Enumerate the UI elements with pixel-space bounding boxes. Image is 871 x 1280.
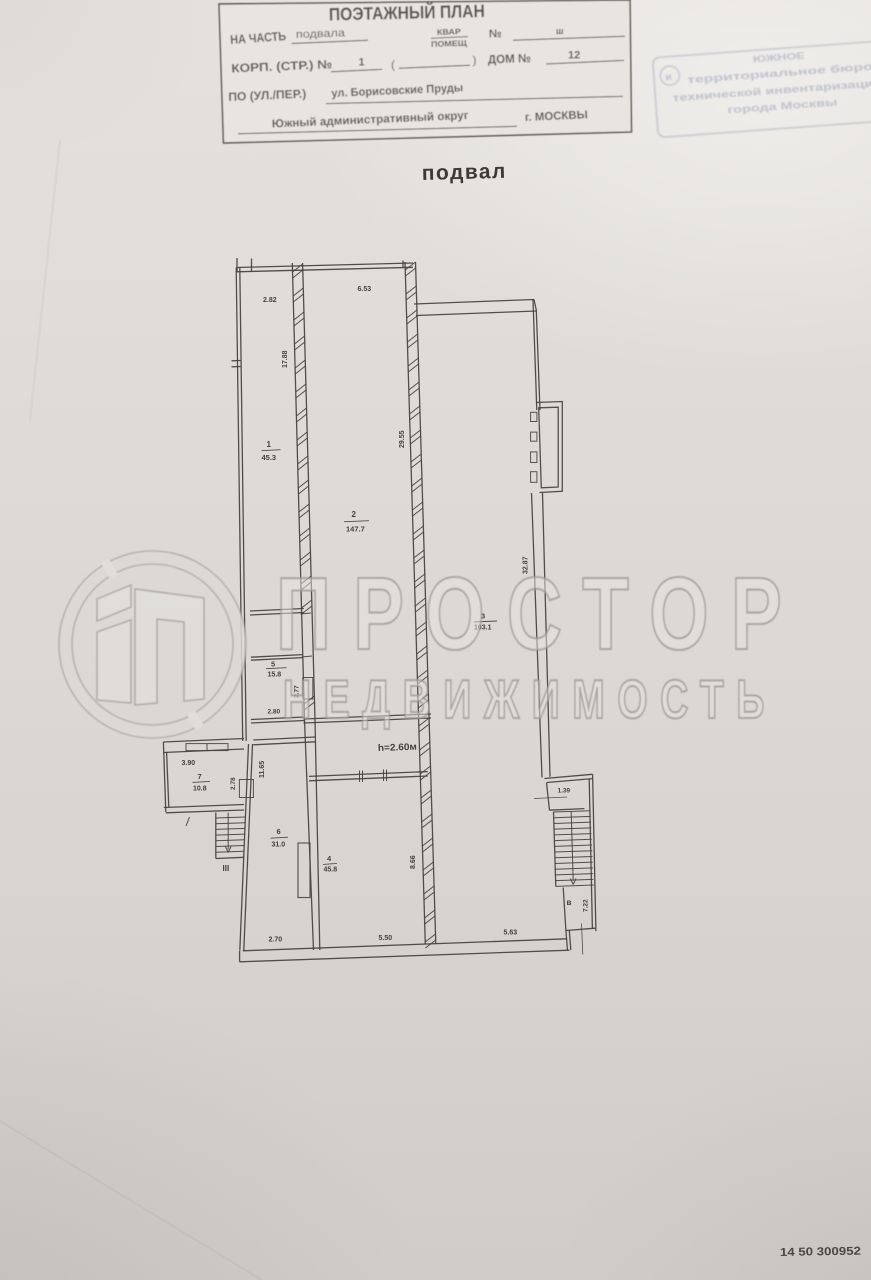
svg-text:14 50 300952: 14 50 300952	[780, 1246, 861, 1259]
svg-text:подвал: подвал	[422, 160, 508, 185]
svg-text:h=2.60м: h=2.60м	[378, 742, 417, 754]
svg-text:10.8: 10.8	[193, 786, 207, 793]
svg-text:45.8: 45.8	[324, 867, 338, 874]
svg-text:ПОМЕЩ: ПОМЕЩ	[431, 39, 468, 49]
svg-text:6: 6	[277, 827, 281, 836]
svg-text:5: 5	[271, 660, 275, 669]
svg-text:11.65: 11.65	[259, 761, 266, 778]
svg-text:4: 4	[327, 854, 332, 863]
svg-text:): )	[473, 53, 477, 67]
svg-text:7: 7	[198, 772, 202, 781]
svg-text:2.78: 2.78	[230, 777, 237, 790]
svg-text:7.22: 7.22	[583, 899, 590, 912]
svg-text:ДОМ №: ДОМ №	[488, 51, 531, 66]
svg-text:45.3: 45.3	[262, 453, 277, 462]
svg-text:8.66: 8.66	[410, 855, 417, 869]
svg-text:1.39: 1.39	[558, 788, 571, 795]
svg-text:2.80: 2.80	[268, 709, 281, 716]
svg-text:ПОЭТАЖНЫЙ ПЛАН: ПОЭТАЖНЫЙ ПЛАН	[329, 0, 485, 24]
svg-text:29.55: 29.55	[399, 430, 406, 448]
svg-text:подвала: подвала	[296, 27, 346, 41]
svg-text:ЮЖНОЕ: ЮЖНОЕ	[753, 51, 806, 66]
svg-text:12: 12	[568, 50, 580, 62]
svg-text:КВАР: КВАР	[437, 27, 462, 37]
svg-text:15.8: 15.8	[268, 672, 282, 679]
svg-text:1: 1	[359, 57, 365, 69]
svg-text:31.0: 31.0	[272, 842, 286, 849]
svg-text:(: (	[391, 58, 395, 72]
svg-text:5.63: 5.63	[504, 930, 518, 937]
svg-text:НЕДВИЖИМОСТЬ: НЕДВИЖИМОСТЬ	[283, 668, 777, 730]
svg-text:3.90: 3.90	[182, 760, 196, 767]
svg-text:6.53: 6.53	[358, 286, 372, 293]
svg-text:1: 1	[267, 440, 272, 449]
svg-text:в: в	[567, 898, 572, 907]
svg-text:5.50: 5.50	[379, 935, 393, 942]
svg-text:ПРОСТОР: ПРОСТОР	[276, 556, 804, 671]
svg-text:17.88: 17.88	[282, 350, 289, 368]
svg-text:города Москвы: города Москвы	[727, 96, 838, 116]
svg-text:147.7: 147.7	[346, 525, 365, 534]
svg-text:III: III	[223, 864, 230, 873]
svg-text:2: 2	[352, 510, 357, 519]
svg-text:2.82: 2.82	[263, 297, 277, 304]
svg-text:№: №	[489, 28, 502, 40]
svg-text:и: и	[665, 72, 672, 83]
svg-text:ш: ш	[556, 26, 564, 36]
svg-text:2.70: 2.70	[269, 937, 283, 944]
